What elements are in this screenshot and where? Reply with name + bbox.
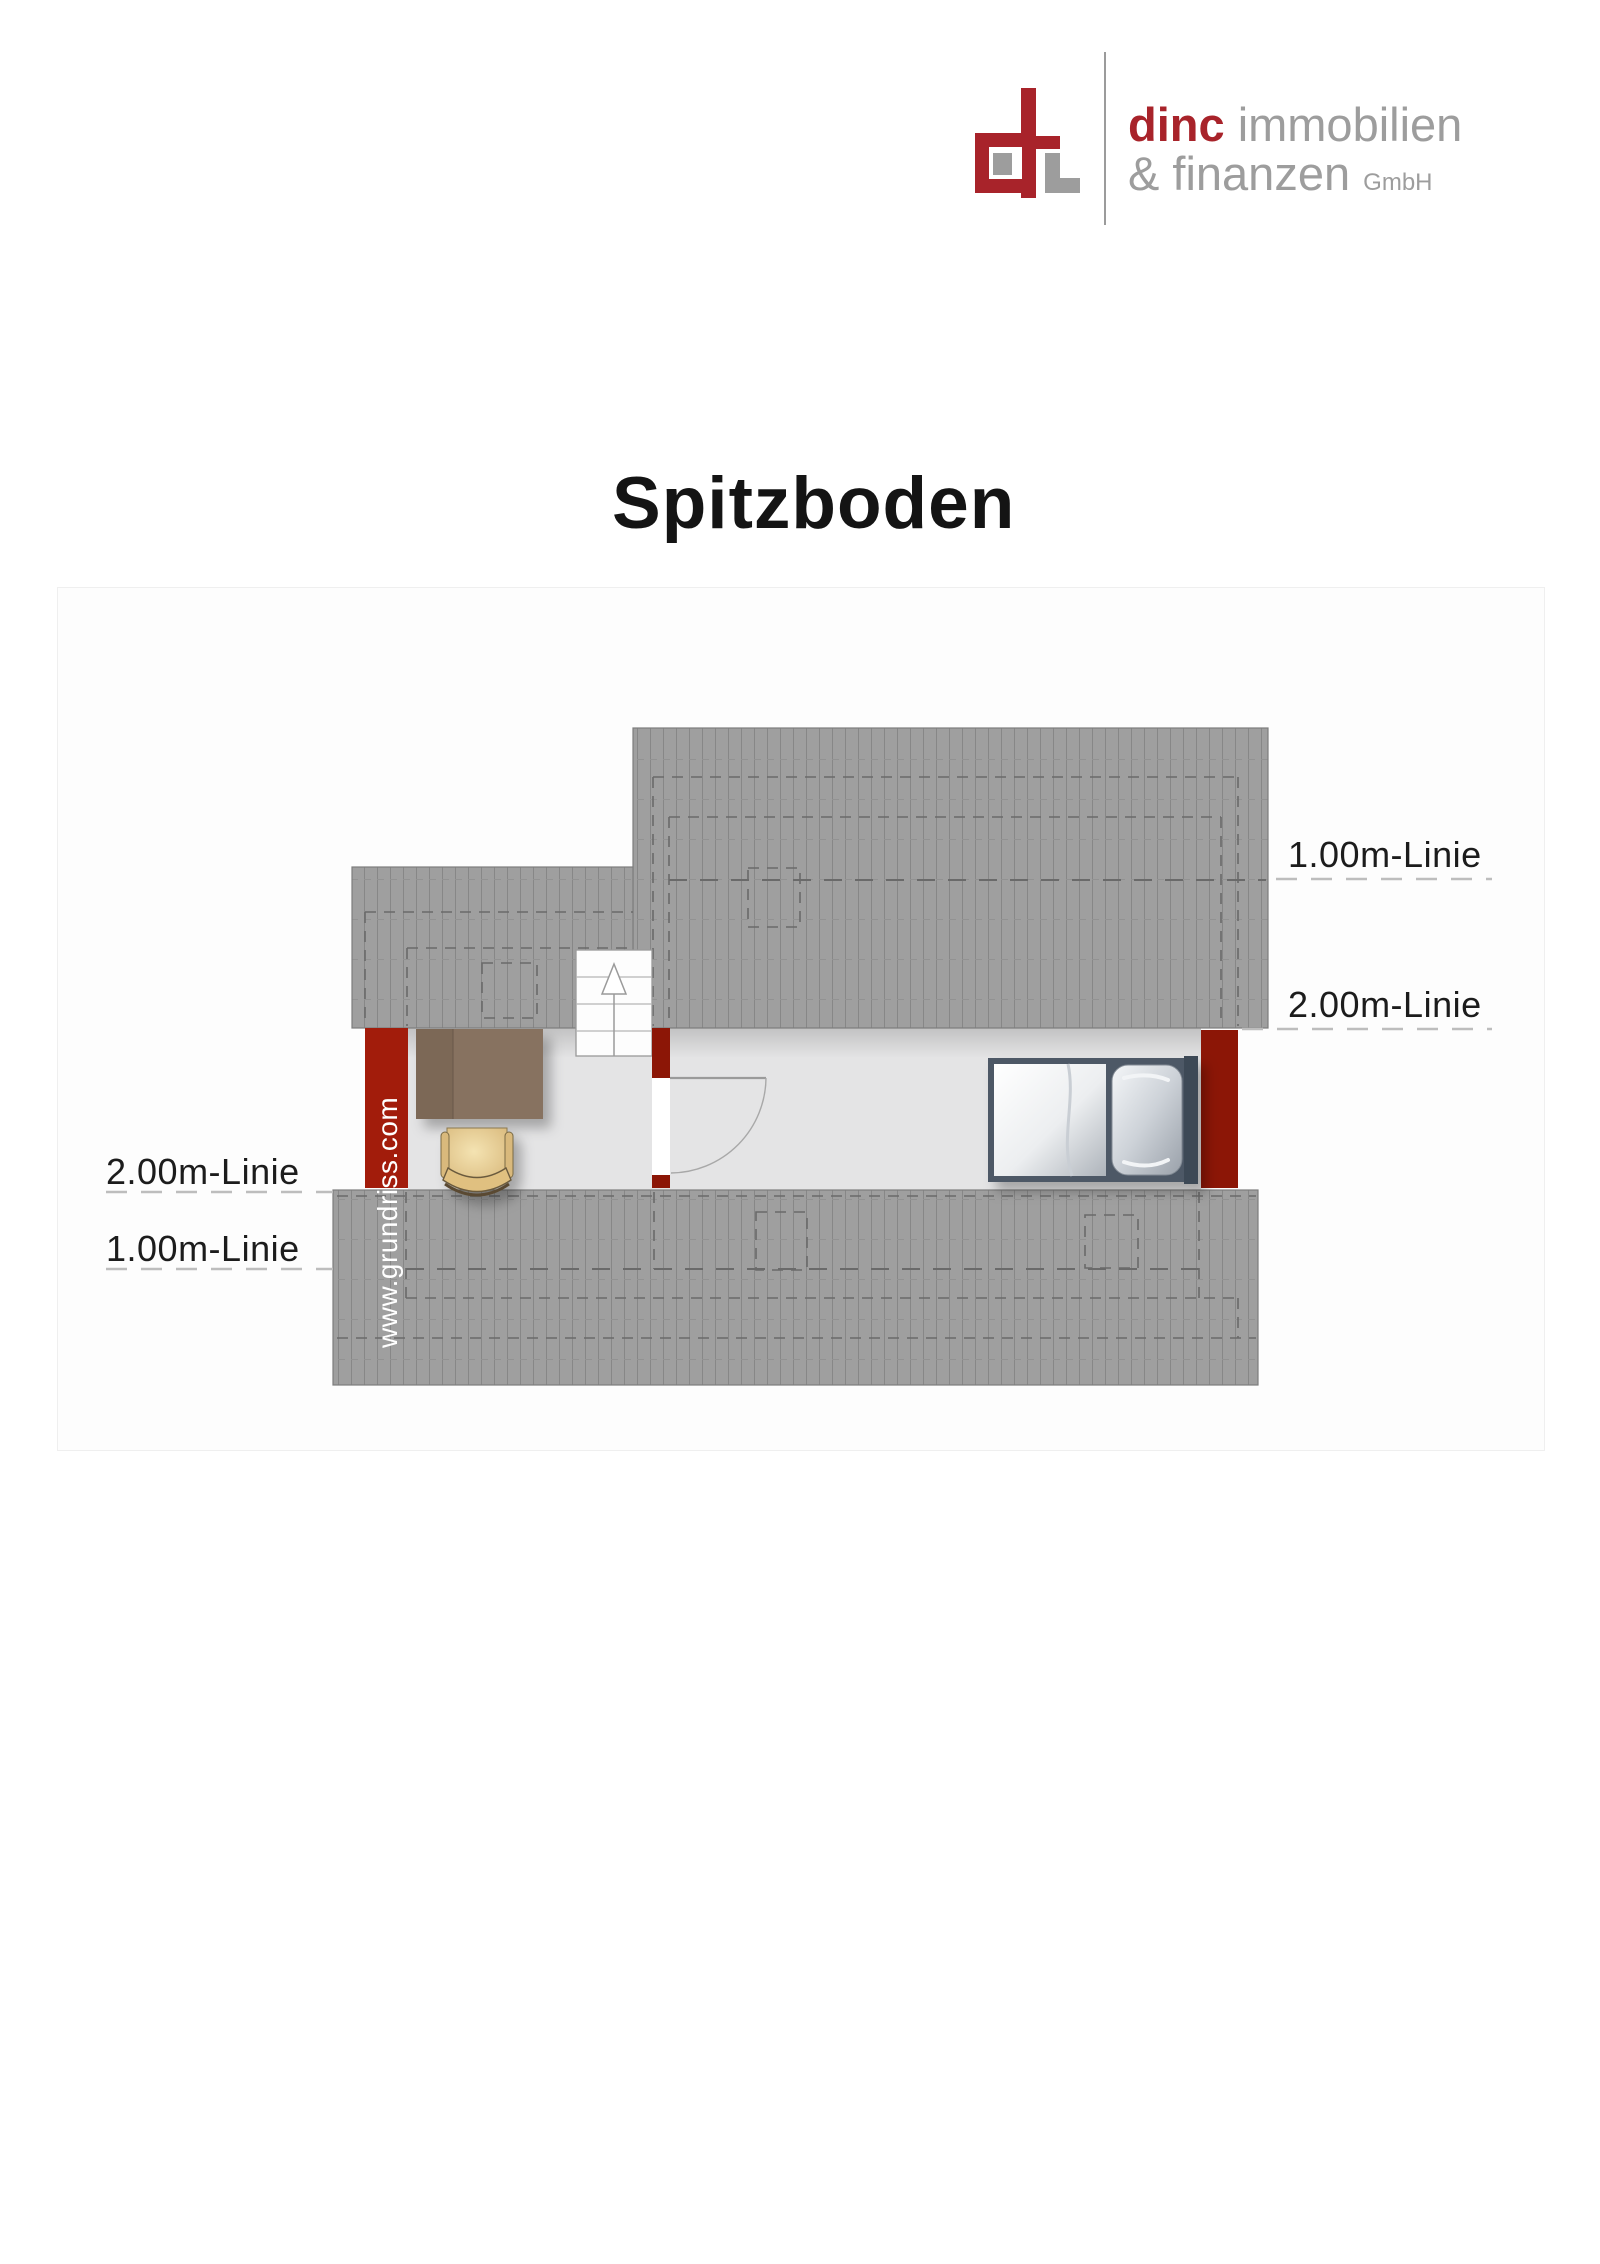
- bed-pillow: [1112, 1065, 1182, 1175]
- wall-door-lower: [652, 1175, 670, 1188]
- wall-right: [1201, 1030, 1238, 1188]
- label-right-2m-linie: 2.00m-Linie: [1288, 984, 1482, 1026]
- floor-plan-drawing: [0, 0, 1600, 2264]
- bed: [988, 1056, 1198, 1184]
- chair: [441, 1128, 513, 1195]
- bed-headboard: [1184, 1056, 1198, 1184]
- label-right-1m-linie: 1.00m-Linie: [1288, 834, 1482, 876]
- label-left-1m-linie: 1.00m-Linie: [106, 1228, 300, 1270]
- bed-mattress: [994, 1064, 1106, 1176]
- roof-bottom: [333, 1190, 1258, 1385]
- staircase: [576, 950, 652, 1056]
- roof-top-main: [633, 728, 1268, 1028]
- label-left-2m-linie: 2.00m-Linie: [106, 1151, 300, 1193]
- wall-door-upper: [652, 1028, 670, 1078]
- desk: [416, 1029, 543, 1119]
- floorplan-page: dinc immobilien & finanzen GmbH Spitzbod…: [0, 0, 1600, 2264]
- watermark-text: www.grundriss.com: [373, 1092, 403, 1348]
